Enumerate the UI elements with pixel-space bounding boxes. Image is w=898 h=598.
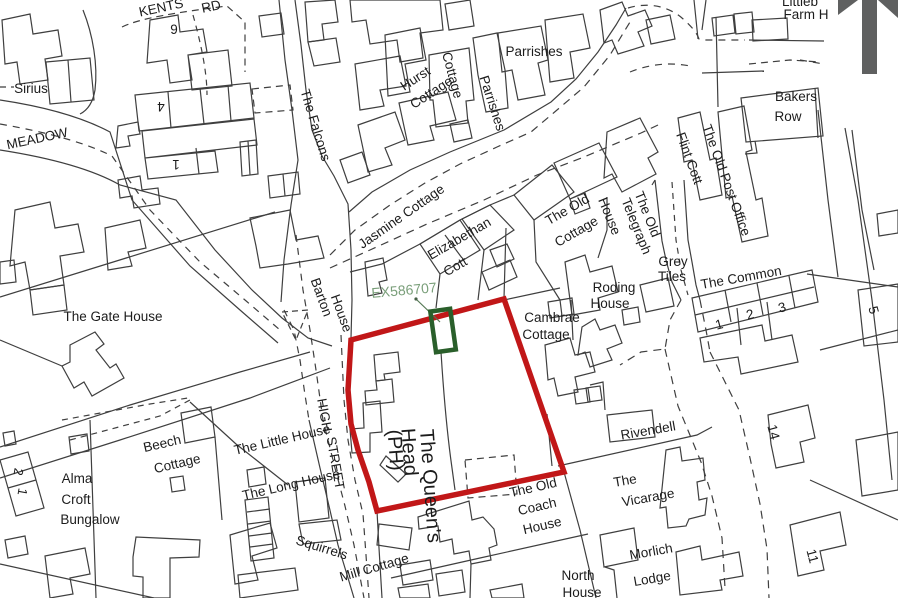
svg-text:Littleb: Littleb [782, 0, 818, 9]
svg-text:Roding: Roding [593, 280, 636, 295]
svg-text:Alma: Alma [62, 471, 93, 486]
svg-text:Croft: Croft [61, 492, 91, 507]
svg-text:Row: Row [774, 109, 801, 124]
svg-text:House: House [562, 585, 601, 598]
svg-text:Farm H: Farm H [784, 7, 829, 22]
svg-text:House: House [590, 296, 629, 311]
svg-text:4: 4 [157, 99, 165, 114]
svg-text:Bungalow: Bungalow [60, 512, 120, 527]
svg-text:Bakers: Bakers [775, 89, 817, 104]
svg-text:(PH): (PH) [383, 429, 408, 472]
svg-text:Sirius: Sirius [14, 81, 48, 96]
svg-text:Cambrae: Cambrae [524, 310, 580, 325]
svg-text:Grey: Grey [658, 254, 688, 269]
svg-text:9: 9 [170, 22, 178, 37]
svg-text:Cottage: Cottage [522, 327, 569, 342]
svg-text:1: 1 [172, 157, 180, 172]
svg-text:Tiles: Tiles [658, 269, 686, 284]
svg-text:The Gate House: The Gate House [63, 309, 162, 324]
svg-text:Parrishes: Parrishes [505, 44, 562, 59]
svg-text:North: North [561, 568, 594, 583]
